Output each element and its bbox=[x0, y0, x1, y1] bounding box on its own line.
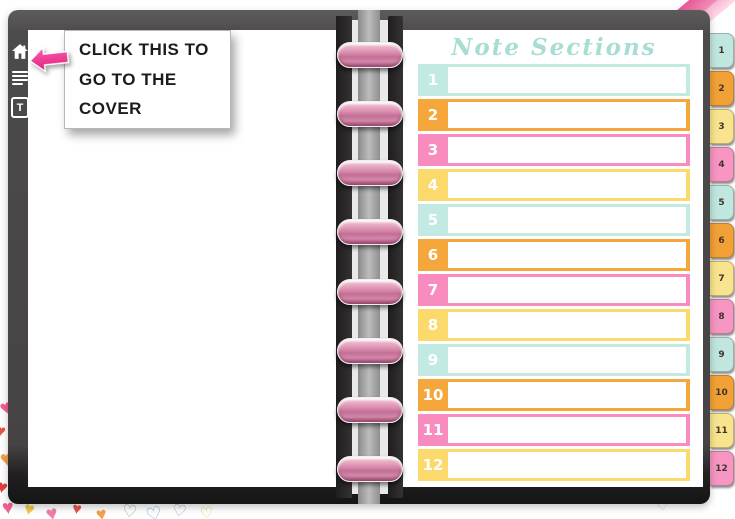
binder-ring-icon bbox=[337, 101, 403, 127]
section-tab-7[interactable]: 7 bbox=[710, 261, 734, 296]
note-row[interactable]: 12 bbox=[418, 449, 690, 481]
note-row-field[interactable] bbox=[448, 137, 686, 163]
binder-ring-icon bbox=[337, 42, 403, 68]
note-row[interactable]: 10 bbox=[418, 379, 690, 411]
heart-outline-icon: ♡ bbox=[171, 503, 188, 519]
heart-icon: ♥ bbox=[95, 504, 109, 519]
section-tab-11[interactable]: 11 bbox=[710, 413, 734, 448]
annotation-line-1: CLICK THIS TO bbox=[79, 35, 230, 65]
note-row-number: 10 bbox=[418, 379, 448, 411]
binder-ring-icon bbox=[337, 219, 403, 245]
index-button[interactable] bbox=[11, 71, 29, 85]
section-tab-label: 9 bbox=[718, 350, 724, 360]
note-row-field[interactable] bbox=[448, 452, 686, 478]
text-tool-button[interactable]: T bbox=[11, 97, 29, 118]
list-icon bbox=[12, 71, 28, 85]
note-row-field[interactable] bbox=[448, 242, 686, 268]
section-tab-label: 11 bbox=[715, 426, 728, 436]
heart-outline-icon: ♡ bbox=[199, 505, 214, 519]
section-tab-label: 6 bbox=[718, 236, 724, 246]
text-tool-icon: T bbox=[11, 97, 29, 118]
note-row[interactable]: 4 bbox=[418, 169, 690, 201]
heart-outline-icon: ♡ bbox=[121, 502, 138, 519]
note-row-number: 5 bbox=[418, 204, 448, 236]
section-tab-label: 4 bbox=[718, 160, 724, 170]
binder-rings bbox=[337, 42, 403, 482]
annotation-line-2: GO TO THE COVER bbox=[79, 65, 230, 125]
section-tab-3[interactable]: 3 bbox=[710, 109, 734, 144]
note-row-number: 9 bbox=[418, 344, 448, 376]
heart-icon: ♥ bbox=[44, 503, 60, 519]
section-tab-label: 3 bbox=[718, 122, 724, 132]
section-tab-label: 8 bbox=[718, 312, 724, 322]
page-title: Note Sections bbox=[418, 34, 690, 61]
sidebar: T bbox=[10, 44, 30, 118]
note-row[interactable]: 2 bbox=[418, 99, 690, 131]
note-row-field[interactable] bbox=[448, 207, 686, 233]
note-row-number: 11 bbox=[418, 414, 448, 446]
note-row[interactable]: 7 bbox=[418, 274, 690, 306]
note-row-field[interactable] bbox=[448, 277, 686, 303]
section-tab-label: 12 bbox=[715, 464, 728, 474]
binder-ring-icon bbox=[337, 160, 403, 186]
note-row[interactable]: 3 bbox=[418, 134, 690, 166]
note-row-field[interactable] bbox=[448, 382, 686, 408]
note-row-field[interactable] bbox=[448, 347, 686, 373]
section-tab-label: 1 bbox=[718, 46, 724, 56]
section-tab-6[interactable]: 6 bbox=[710, 223, 734, 258]
note-row-number: 1 bbox=[418, 64, 448, 96]
note-row-field[interactable] bbox=[448, 67, 686, 93]
note-row[interactable]: 9 bbox=[418, 344, 690, 376]
note-row-number: 7 bbox=[418, 274, 448, 306]
annotation-note: CLICK THIS TO GO TO THE COVER bbox=[64, 30, 231, 129]
note-row-number: 3 bbox=[418, 134, 448, 166]
section-tab-8[interactable]: 8 bbox=[710, 299, 734, 334]
section-tab-10[interactable]: 10 bbox=[710, 375, 734, 410]
binder-ring-icon bbox=[337, 397, 403, 423]
section-tab-1[interactable]: 1 bbox=[710, 33, 734, 68]
heart-outline-icon: ♡ bbox=[144, 503, 164, 519]
note-row[interactable]: 8 bbox=[418, 309, 690, 341]
section-tab-label: 10 bbox=[715, 388, 728, 398]
digital-planner-screen: ♥ ♥ ♥ ♥ ♥ ♥ ♥ ♥ ♥ ♡ ♡ ♡ ♡ ♡ ♡ 1 2 3 4 5 … bbox=[0, 0, 735, 519]
note-row-number: 12 bbox=[418, 449, 448, 481]
home-button[interactable] bbox=[11, 44, 29, 59]
note-row[interactable]: 5 bbox=[418, 204, 690, 236]
section-tab-5[interactable]: 5 bbox=[710, 185, 734, 220]
note-row-field[interactable] bbox=[448, 417, 686, 443]
note-row-number: 6 bbox=[418, 239, 448, 271]
note-row-field[interactable] bbox=[448, 312, 686, 338]
section-tab-label: 5 bbox=[718, 198, 724, 208]
note-row[interactable]: 1 bbox=[418, 64, 690, 96]
binder-ring-icon bbox=[337, 456, 403, 482]
note-sections-list: 1 2 3 4 5 bbox=[418, 64, 690, 481]
binder-ring-icon bbox=[337, 338, 403, 364]
binder-ring-icon bbox=[337, 279, 403, 305]
section-tab-label: 7 bbox=[718, 274, 724, 284]
home-icon bbox=[12, 44, 28, 59]
note-row[interactable]: 11 bbox=[418, 414, 690, 446]
arrow-left-icon bbox=[28, 42, 71, 76]
section-tab-12[interactable]: 12 bbox=[710, 451, 734, 486]
notebook: T CLICK THIS TO GO TO THE COVER bbox=[8, 10, 710, 504]
note-row-field[interactable] bbox=[448, 102, 686, 128]
section-tab-label: 2 bbox=[718, 84, 724, 94]
section-tab-2[interactable]: 2 bbox=[710, 71, 734, 106]
note-row[interactable]: 6 bbox=[418, 239, 690, 271]
right-page: Note Sections 1 2 3 4 bbox=[403, 30, 703, 487]
section-tabs: 1 2 3 4 5 6 7 8 9 10 11 12 bbox=[710, 33, 734, 486]
note-row-field[interactable] bbox=[448, 172, 686, 198]
heart-icon: ♥ bbox=[0, 423, 7, 440]
section-tab-4[interactable]: 4 bbox=[710, 147, 734, 182]
note-row-number: 2 bbox=[418, 99, 448, 131]
section-tab-9[interactable]: 9 bbox=[710, 337, 734, 372]
note-row-number: 8 bbox=[418, 309, 448, 341]
note-row-number: 4 bbox=[418, 169, 448, 201]
